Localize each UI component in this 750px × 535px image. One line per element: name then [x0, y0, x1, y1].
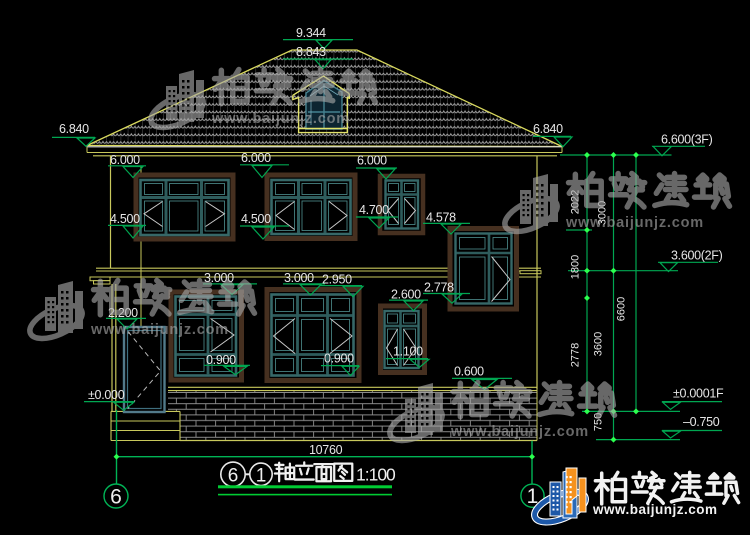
svg-text:9.344: 9.344 — [296, 26, 326, 40]
svg-text:3600: 3600 — [593, 332, 605, 356]
svg-text:3.000: 3.000 — [284, 271, 314, 285]
svg-text:4.500: 4.500 — [241, 212, 271, 226]
svg-text:3.600(2F): 3.600(2F) — [671, 249, 723, 263]
svg-text:1.100: 1.100 — [393, 345, 423, 359]
svg-text:2.600: 2.600 — [391, 288, 421, 302]
svg-text:4.700: 4.700 — [359, 203, 389, 217]
svg-text:6: 6 — [228, 466, 239, 487]
svg-text:6: 6 — [110, 486, 122, 509]
svg-text:±0.0001F: ±0.0001F — [673, 387, 724, 401]
svg-text:6.000: 6.000 — [357, 154, 387, 168]
svg-text:4.578: 4.578 — [426, 211, 456, 225]
svg-text:6.840: 6.840 — [59, 122, 89, 136]
svg-text:0.900: 0.900 — [206, 353, 236, 367]
svg-text:8.843: 8.843 — [296, 45, 326, 59]
svg-text:6.000: 6.000 — [110, 153, 140, 167]
svg-text:1800: 1800 — [570, 255, 582, 279]
svg-text:10760: 10760 — [309, 443, 343, 457]
svg-text:2778: 2778 — [570, 343, 582, 367]
svg-text:www.baijunjz.com: www.baijunjz.com — [592, 502, 718, 517]
svg-text:0.600: 0.600 — [454, 365, 484, 379]
svg-text:1: 1 — [256, 466, 267, 487]
svg-text:6600: 6600 — [616, 297, 628, 321]
svg-text:6.840: 6.840 — [533, 122, 563, 136]
svg-text:±0.000: ±0.000 — [88, 388, 125, 402]
svg-text:2.778: 2.778 — [424, 281, 454, 295]
svg-text:6.600(3F): 6.600(3F) — [661, 133, 713, 147]
svg-text:2.950: 2.950 — [322, 273, 352, 287]
svg-text:1:100: 1:100 — [356, 465, 396, 485]
svg-text:0.900: 0.900 — [324, 352, 354, 366]
svg-text:–0.750: –0.750 — [683, 415, 720, 429]
svg-text:6.000: 6.000 — [241, 151, 271, 165]
svg-text:4.500: 4.500 — [110, 212, 140, 226]
